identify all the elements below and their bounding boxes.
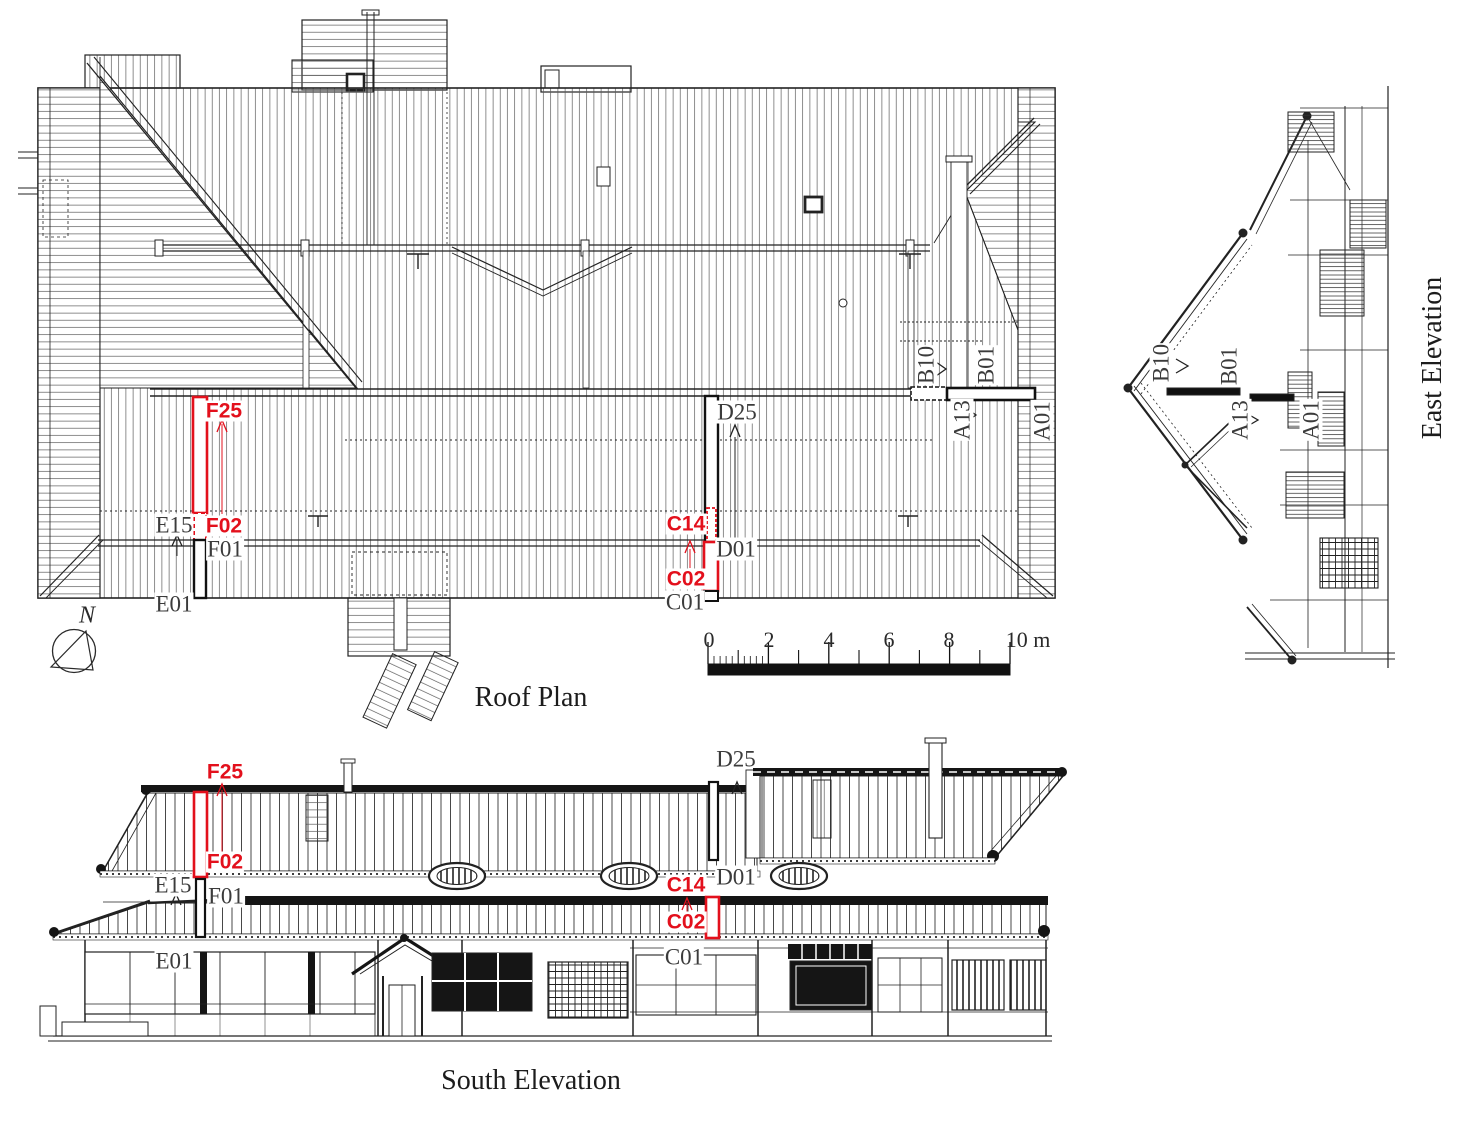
south-elevation-title: South Elevation bbox=[441, 1065, 621, 1097]
roof-label-d25: D25 bbox=[716, 401, 758, 424]
scale-tick-8: 8 bbox=[944, 627, 955, 653]
roof-label-c01: C01 bbox=[665, 591, 705, 614]
scale-tick-4: 4 bbox=[824, 627, 835, 653]
roof-label-f01: F01 bbox=[206, 538, 244, 561]
south-label-e15: E15 bbox=[153, 874, 192, 897]
lattice-panel bbox=[548, 962, 628, 1018]
east-marker-bar-2 bbox=[1250, 394, 1294, 401]
east-label-b01: B01 bbox=[1218, 346, 1241, 386]
marker-a13-bar bbox=[911, 387, 947, 400]
south-label-f02: F02 bbox=[206, 852, 244, 873]
roof-plan-title: Roof Plan bbox=[475, 682, 588, 714]
roof-plan-drawing bbox=[18, 10, 1055, 728]
south-marker-d25 bbox=[709, 782, 718, 860]
left-window-band bbox=[85, 952, 375, 1014]
roof-label-f02: F02 bbox=[205, 516, 243, 537]
scale-bar bbox=[708, 642, 1010, 675]
roof-label-f25: F25 bbox=[205, 401, 243, 422]
south-label-c02: C02 bbox=[666, 912, 707, 933]
roof-label-e01: E01 bbox=[154, 593, 193, 616]
architectural-drawing-sheet: F25 E15 F02 F01 E01 D25 C14 D01 C02 C01 … bbox=[0, 0, 1476, 1122]
south-label-d01: D01 bbox=[715, 866, 757, 889]
east-label-a01: A01 bbox=[1300, 399, 1323, 441]
roof-chimney-square bbox=[805, 197, 822, 212]
roof-label-c14: C14 bbox=[666, 514, 707, 535]
east-label-b10: B10 bbox=[1150, 343, 1173, 383]
roof-label-b10: B10 bbox=[915, 345, 938, 385]
north-label: N bbox=[79, 603, 95, 630]
scale-tick-6: 6 bbox=[884, 627, 895, 653]
roof-label-c02: C02 bbox=[666, 569, 707, 590]
south-elevation-drawing bbox=[40, 738, 1067, 1041]
scale-tick-10m: 10 m bbox=[1006, 627, 1051, 653]
south-label-f01: F01 bbox=[207, 885, 245, 908]
south-label-d25: D25 bbox=[715, 748, 757, 771]
marker-a01-bar bbox=[947, 388, 1035, 400]
south-marker-c02 bbox=[706, 897, 719, 938]
south-label-c01: C01 bbox=[664, 946, 704, 969]
roof-label-e15: E15 bbox=[154, 514, 193, 537]
south-label-c14: C14 bbox=[666, 875, 707, 896]
marker-e01-bar bbox=[194, 540, 206, 598]
roof-label-d01: D01 bbox=[715, 538, 757, 561]
roof-label-a13: A13 bbox=[951, 399, 974, 441]
east-marker-bar-1 bbox=[1167, 388, 1240, 395]
south-label-e01: E01 bbox=[154, 950, 193, 973]
scale-tick-0: 0 bbox=[704, 627, 715, 653]
roof-label-b01: B01 bbox=[975, 345, 998, 385]
scale-tick-2: 2 bbox=[764, 627, 775, 653]
east-label-a13: A13 bbox=[1229, 399, 1252, 441]
south-marker-e01 bbox=[196, 879, 205, 937]
south-label-f25: F25 bbox=[206, 762, 244, 783]
north-arrow bbox=[51, 630, 96, 673]
roof-label-a01: A01 bbox=[1031, 400, 1054, 442]
east-elevation-title: East Elevation bbox=[1417, 277, 1449, 440]
